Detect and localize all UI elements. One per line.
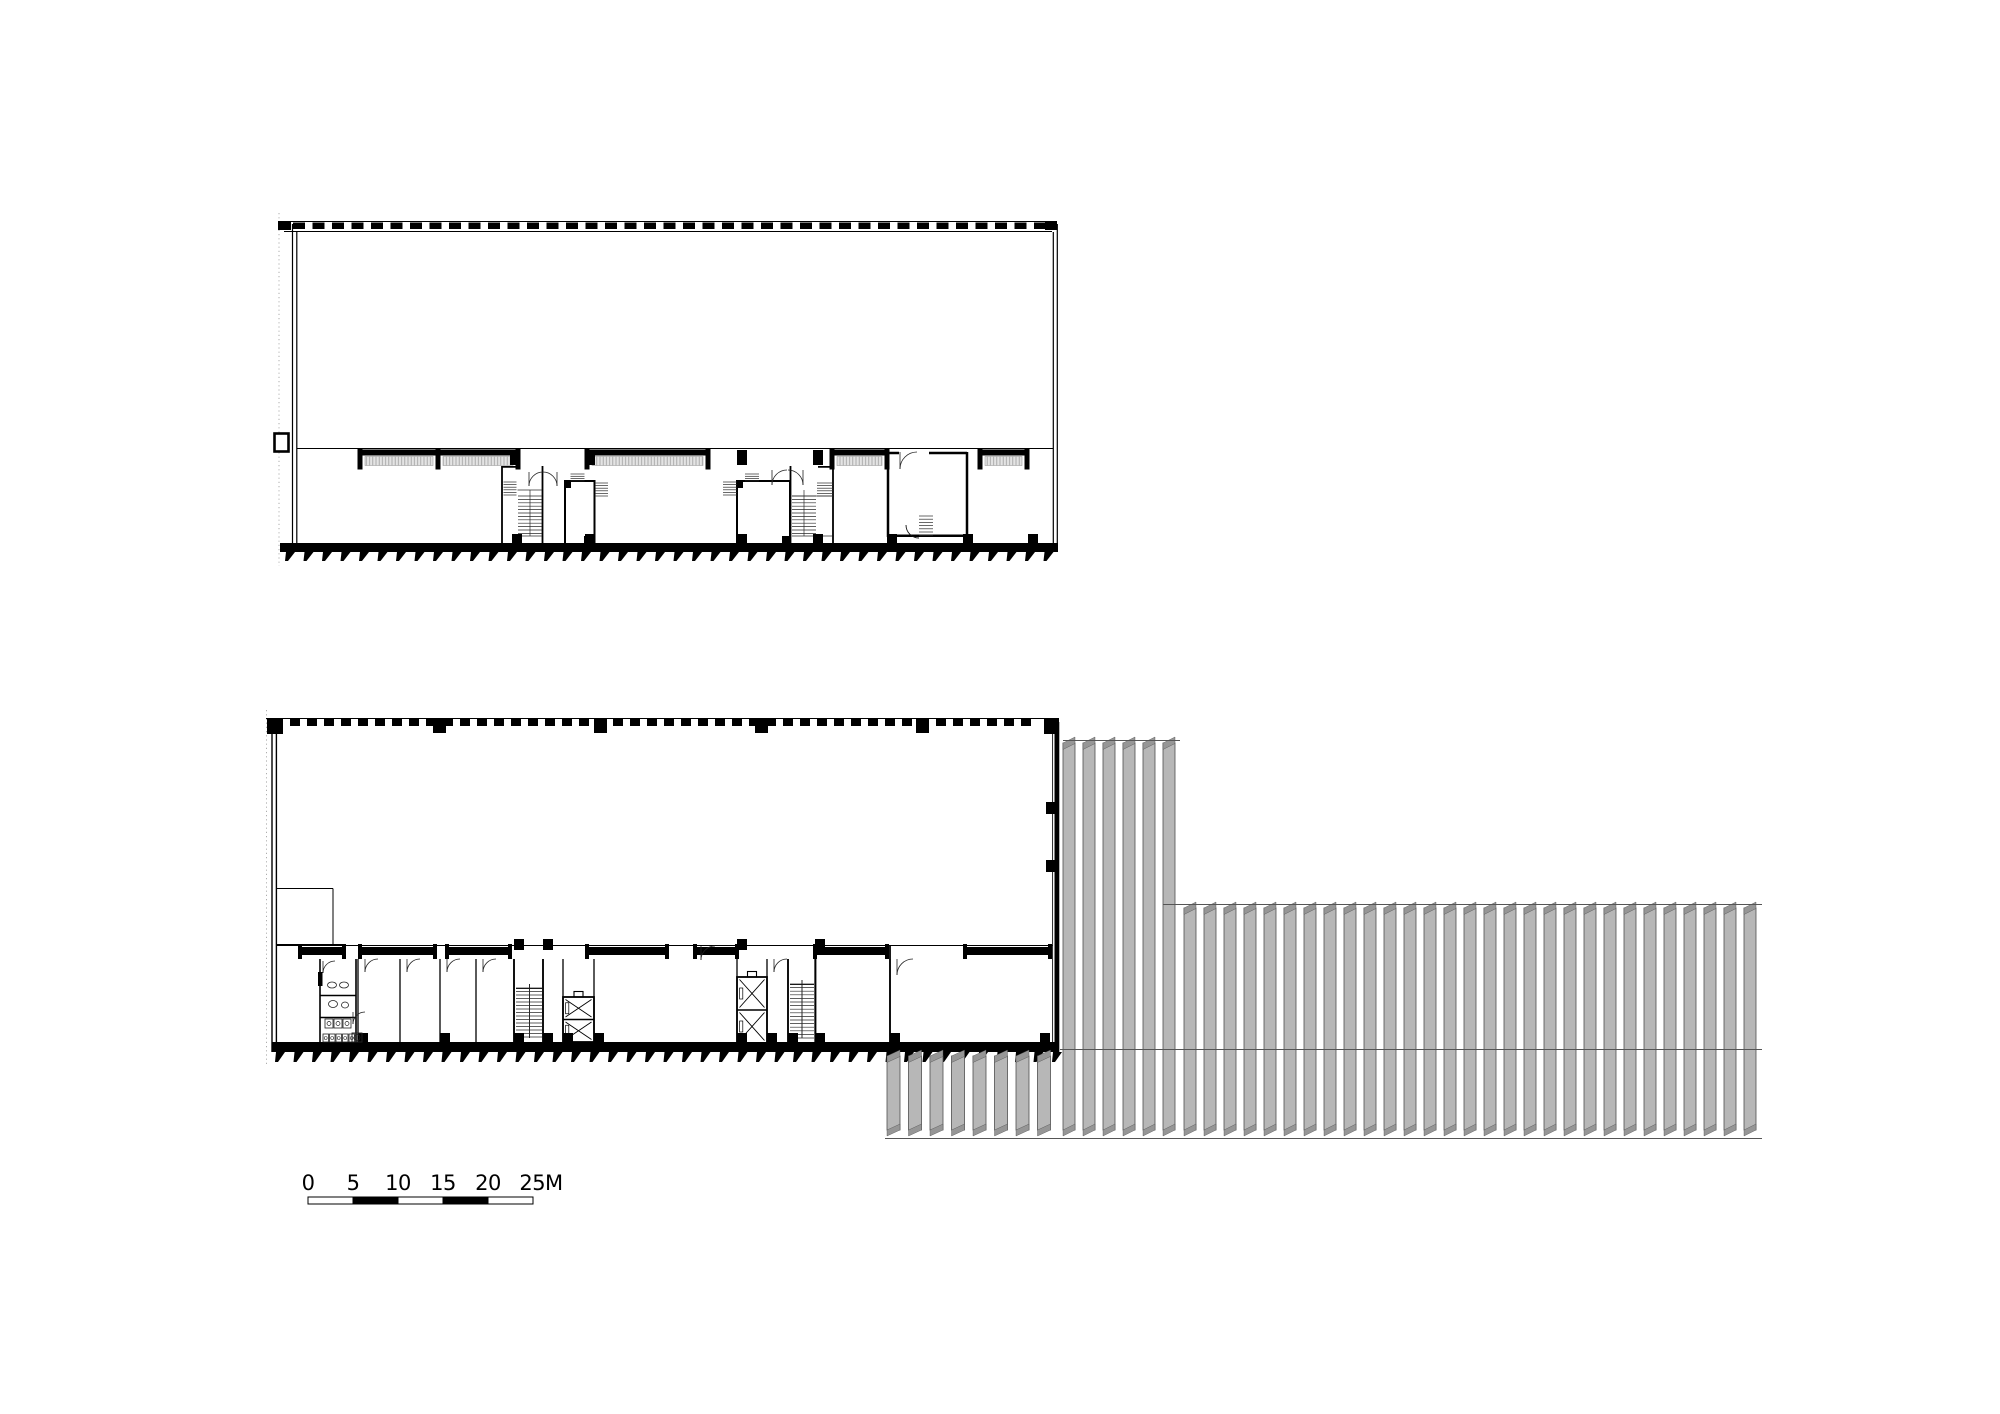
upper-floor-plan: [275, 213, 1059, 566]
left-wall-niche: [275, 434, 289, 452]
louver-screen: [885, 737, 1762, 1139]
ground-floor-plan: [266, 710, 1062, 1066]
scale-bar: 0 5 10 15 20 25M: [302, 1171, 563, 1204]
floor-plan-drawing: 0 5 10 15 20 25M: [0, 0, 2000, 1414]
architectural-drawing-page: 0 5 10 15 20 25M: [0, 0, 2000, 1414]
scale-label: 5: [347, 1171, 360, 1195]
scale-label: 10: [385, 1171, 411, 1195]
scale-label: 25M: [519, 1171, 562, 1195]
upper-plan-south-wall: [280, 543, 1058, 552]
ground-plan-south-wall: [272, 1042, 1059, 1052]
scale-label: 15: [430, 1171, 456, 1195]
east-wall: [1055, 722, 1060, 1052]
scale-label: 20: [475, 1171, 501, 1195]
scale-label: 0: [302, 1171, 315, 1195]
